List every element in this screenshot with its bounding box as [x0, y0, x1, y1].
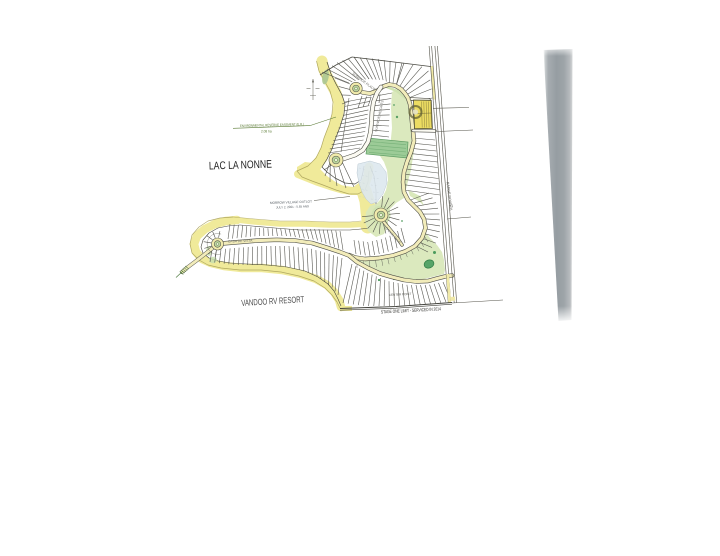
svg-text:31: 31 — [450, 204, 454, 208]
svg-text:2.08 ha: 2.08 ha — [261, 130, 272, 134]
svg-text:LAC LA NONNE: LAC LA NONNE — [209, 159, 272, 173]
